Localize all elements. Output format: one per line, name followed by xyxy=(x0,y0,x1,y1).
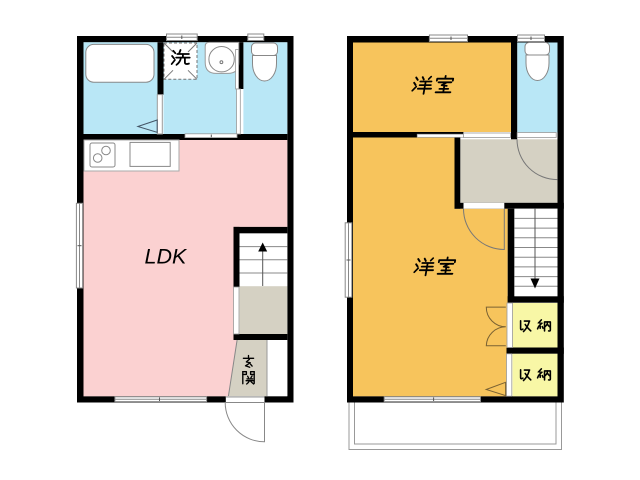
svg-text:LDK: LDK xyxy=(145,245,188,269)
